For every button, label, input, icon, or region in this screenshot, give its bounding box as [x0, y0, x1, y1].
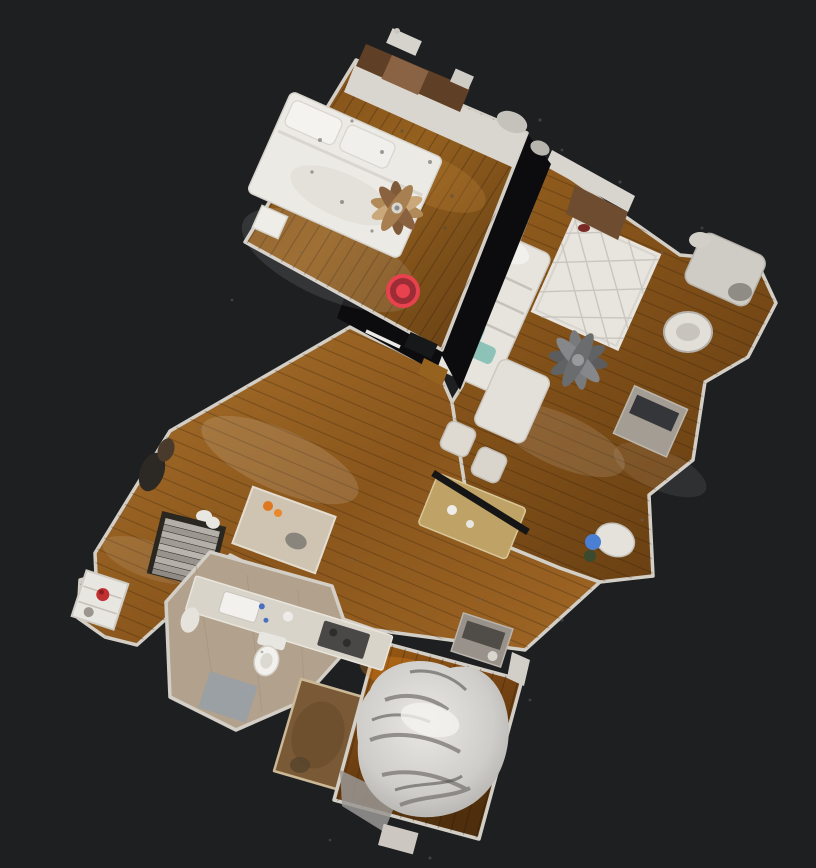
floorplan-viewport [0, 0, 816, 868]
position-marker[interactable] [386, 274, 420, 308]
blue-bag [585, 534, 601, 550]
floorplan-canvas [0, 0, 816, 868]
red-object [578, 224, 590, 232]
fruit [274, 509, 282, 517]
wall-piece [689, 232, 711, 248]
green-bag [584, 550, 596, 562]
wall-speck [394, 28, 400, 34]
marker-dot [398, 286, 409, 297]
carpet-shade [290, 757, 310, 773]
fruit [263, 501, 273, 511]
